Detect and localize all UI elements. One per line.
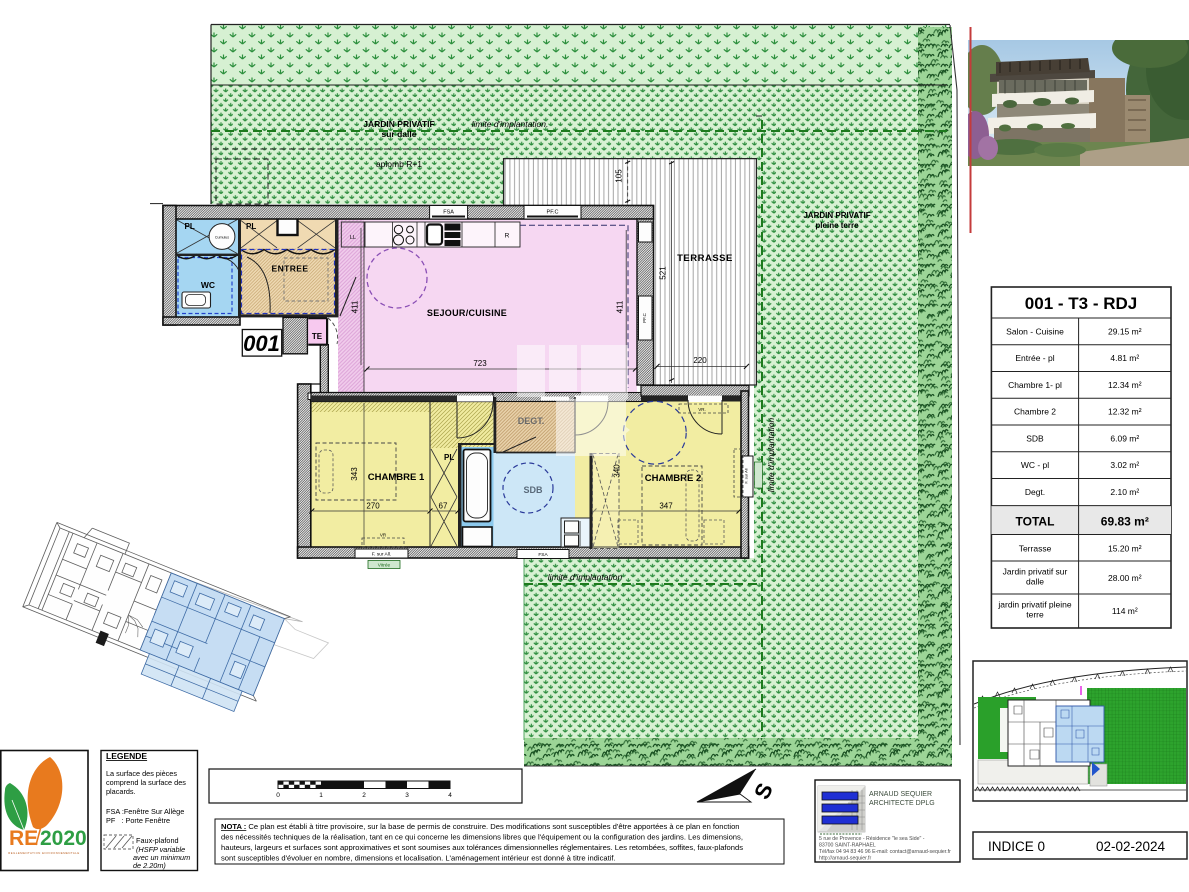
svg-text:limite d'implantation: limite d'implantation [548, 572, 623, 582]
svg-text:ARCHITECTE DPLG: ARCHITECTE DPLG [869, 800, 935, 807]
svg-text:La surface des pièces: La surface des pièces [106, 769, 177, 778]
svg-text:SEJOUR/CUISINE: SEJOUR/CUISINE [427, 308, 507, 318]
svg-text:RE: RE [9, 827, 38, 850]
svg-text:723: 723 [473, 359, 487, 368]
svg-text:DEGT.: DEGT. [518, 416, 545, 426]
svg-text:3.02 m²: 3.02 m² [1110, 460, 1139, 470]
svg-text:411: 411 [616, 300, 625, 313]
svg-text:Tél/fax 04 94 83 46 96 E-mail: Tél/fax 04 94 83 46 96 E-mail: contact@a… [819, 849, 951, 855]
svg-text:Vitrée: Vitrée [378, 563, 391, 569]
svg-text:001: 001 [243, 331, 280, 356]
svg-text:Faux-plafond: Faux-plafond [136, 836, 179, 845]
svg-text:F. sur All.: F. sur All. [372, 552, 391, 558]
svg-text:001 - T3 - RDJ: 001 - T3 - RDJ [1025, 294, 1137, 313]
svg-text:343: 343 [350, 467, 359, 481]
svg-text:02-02-2024: 02-02-2024 [1096, 839, 1166, 854]
svg-text:Entrée - pl: Entrée - pl [1015, 353, 1054, 363]
svg-text:pleine terre: pleine terre [815, 221, 859, 230]
svg-text:TERRASSE: TERRASSE [677, 253, 733, 264]
svg-text:CHAMBRE 2: CHAMBRE 2 [645, 473, 701, 484]
svg-text:ENTREE: ENTREE [272, 264, 309, 274]
svg-text:aplomb R+1: aplomb R+1 [376, 159, 422, 169]
svg-text:CHAMBRE 1: CHAMBRE 1 [368, 472, 425, 483]
svg-text:411: 411 [351, 300, 360, 313]
svg-text:0: 0 [276, 792, 280, 799]
svg-text:des nécessités techniques de l: des nécessités techniques de la réalisat… [221, 833, 743, 842]
svg-text:comprend la surface des: comprend la surface des [106, 778, 186, 787]
svg-text:F. sur All: F. sur All [744, 468, 749, 483]
svg-text:VR.: VR. [698, 407, 706, 412]
svg-text:1: 1 [319, 792, 323, 799]
svg-text:NOTA : Ce plan est établi à ti: NOTA : Ce plan est établi à titre provis… [221, 822, 740, 831]
svg-text:PF.C: PF.C [547, 210, 559, 216]
svg-text:Degt.: Degt. [1025, 487, 1045, 497]
svg-text:29.15 m²: 29.15 m² [1108, 327, 1142, 337]
svg-text:ARNAUD SEQUIER: ARNAUD SEQUIER [869, 791, 932, 798]
svg-text:2.10 m²: 2.10 m² [1110, 487, 1139, 497]
svg-text:105: 105 [615, 169, 624, 183]
svg-text:TE: TE [312, 332, 323, 341]
svg-text:de 2.20m): de 2.20m) [133, 861, 166, 870]
svg-text:hauteurs, largeurs et surfaces: hauteurs, largeurs et surfaces sont appr… [221, 843, 743, 852]
svg-text:limite d'implantation: limite d'implantation [766, 418, 776, 493]
svg-text:PL: PL [246, 222, 256, 231]
svg-text:12.32 m²: 12.32 m² [1108, 407, 1142, 417]
svg-text:5 rue de Provence - Résidence: 5 rue de Provence - Résidence "le sea Si… [819, 836, 925, 842]
svg-text:sont susceptibles d'évoluer en: sont susceptibles d'évoluer en nombre, d… [221, 854, 616, 863]
svg-text:JARDIN PRIVATIF: JARDIN PRIVATIF [803, 211, 870, 220]
svg-text:terre: terre [1026, 610, 1044, 620]
svg-text:REGLEMENTATION ENVIRONNEMENTAL: REGLEMENTATION ENVIRONNEMENTALE [8, 851, 79, 855]
svg-text:sur dalle: sur dalle [382, 129, 417, 139]
svg-text:http://arnaud-sequier.fr: http://arnaud-sequier.fr [819, 856, 871, 862]
svg-text:3: 3 [405, 792, 409, 799]
svg-text:FSA :Fenêtre Sur Allège: FSA :Fenêtre Sur Allège [106, 807, 184, 816]
svg-text:jardin privatif pleine: jardin privatif pleine [997, 600, 1072, 610]
svg-text:270: 270 [366, 502, 380, 511]
svg-text:Chambre 2: Chambre 2 [1014, 407, 1056, 417]
svg-text:2020: 2020 [40, 827, 87, 850]
svg-text:4.81 m²: 4.81 m² [1110, 353, 1139, 363]
svg-text:WC - pl: WC - pl [1021, 460, 1049, 470]
svg-text:220: 220 [693, 356, 707, 365]
svg-text:Jardin privatif sur: Jardin privatif sur [1003, 567, 1068, 577]
svg-text:INDICE 0: INDICE 0 [988, 839, 1045, 854]
svg-text:LEGENDE: LEGENDE [106, 751, 147, 761]
svg-text:28.00 m²: 28.00 m² [1108, 573, 1142, 583]
svg-text:dalle: dalle [1026, 577, 1044, 587]
svg-text:PF : Porte Fenêtre: PF : Porte Fenêtre [106, 816, 170, 825]
svg-text:4: 4 [448, 792, 452, 799]
svg-text:R: R [505, 233, 510, 240]
svg-text:15.20 m²: 15.20 m² [1108, 544, 1142, 554]
svg-text:VR: VR [380, 533, 387, 538]
svg-text:Salon - Cuisine: Salon - Cuisine [1006, 327, 1064, 337]
svg-text:Terrasse: Terrasse [1019, 544, 1052, 554]
svg-text:347: 347 [659, 502, 673, 511]
svg-text:FSA: FSA [443, 210, 454, 216]
svg-text:SDB: SDB [523, 485, 543, 495]
svg-text:TOTAL: TOTAL [1016, 515, 1055, 529]
svg-text:67: 67 [439, 502, 448, 511]
svg-text:FSA: FSA [538, 552, 548, 558]
svg-text:114 m²: 114 m² [1112, 606, 1138, 616]
svg-text:JARDIN PRIVATIF: JARDIN PRIVATIF [363, 119, 434, 129]
svg-text:83700 SAINT-RAPHAEL: 83700 SAINT-RAPHAEL [819, 843, 876, 849]
svg-text:2: 2 [362, 792, 366, 799]
svg-text:12.34 m²: 12.34 m² [1108, 380, 1142, 390]
svg-text:LL: LL [350, 235, 356, 241]
svg-text:Chambre 1- pl: Chambre 1- pl [1008, 380, 1062, 390]
svg-text:6.09 m²: 6.09 m² [1110, 434, 1139, 444]
svg-text:521: 521 [659, 266, 668, 280]
svg-text:PL: PL [185, 222, 195, 231]
svg-text:PF.C: PF.C [642, 312, 647, 323]
svg-text:Cumulus: Cumulus [215, 236, 229, 240]
svg-text:limite d'implantation.: limite d'implantation. [472, 119, 549, 129]
svg-text:340: 340 [613, 464, 622, 478]
svg-text:placards.: placards. [106, 787, 136, 796]
svg-text:SDB: SDB [1026, 434, 1044, 444]
svg-text:69.83 m²: 69.83 m² [1101, 515, 1149, 529]
svg-text:WC: WC [201, 280, 215, 290]
